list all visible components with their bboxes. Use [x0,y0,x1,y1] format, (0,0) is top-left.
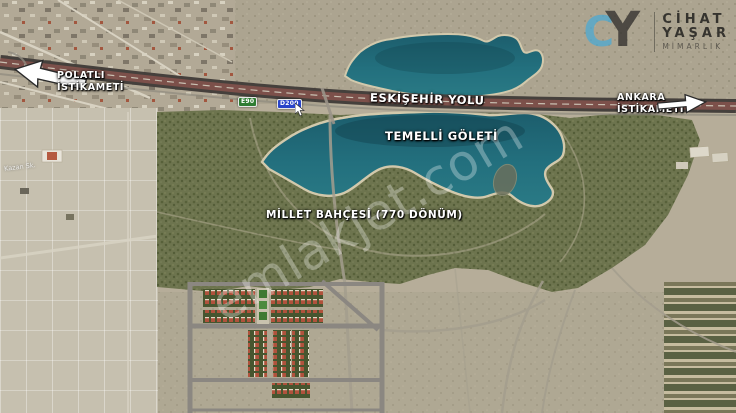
millet-bahcesi-label: MİLLET BAHÇESİ (770 DÖNÜM) [266,209,463,222]
polatli-direction-label: POLATLI İSTİKAMETİ [57,70,124,94]
logo-wordmark: CİHAT YAŞAR MİMARLIK [662,13,730,50]
aerial-map-canvas [0,0,736,413]
eskisehir-yolu-label: ESKİŞEHİR YOLU [370,91,485,108]
mouse-cursor-icon [295,102,306,121]
polatli-label-line1: POLATLI [57,70,124,82]
lake-north-deepwater [375,42,515,74]
logo-divider [654,12,655,52]
aerial-masterplan-image: POLATLI İSTİKAMETİ ANKARA İSTİKAMETİ ESK… [0,0,736,413]
polatli-label-line2: İSTİKAMETİ [57,82,124,94]
ankara-direction-arrow-icon [655,90,709,122]
cihat-yasar-logo: C Y CİHAT YAŞAR MİMARLIK [583,10,730,54]
cy-monogram-icon: C Y [583,10,647,54]
temelli-goleti-label: TEMELLİ GÖLETİ [385,129,498,143]
fields-west [0,108,158,413]
logo-name-line1: CİHAT [662,13,730,27]
monogram-y: Y [605,6,640,54]
logo-name-line2: YAŞAR [662,27,730,41]
logo-name-line3: MİMARLIK [662,43,730,51]
route-sign-e90: E90 [238,97,257,107]
